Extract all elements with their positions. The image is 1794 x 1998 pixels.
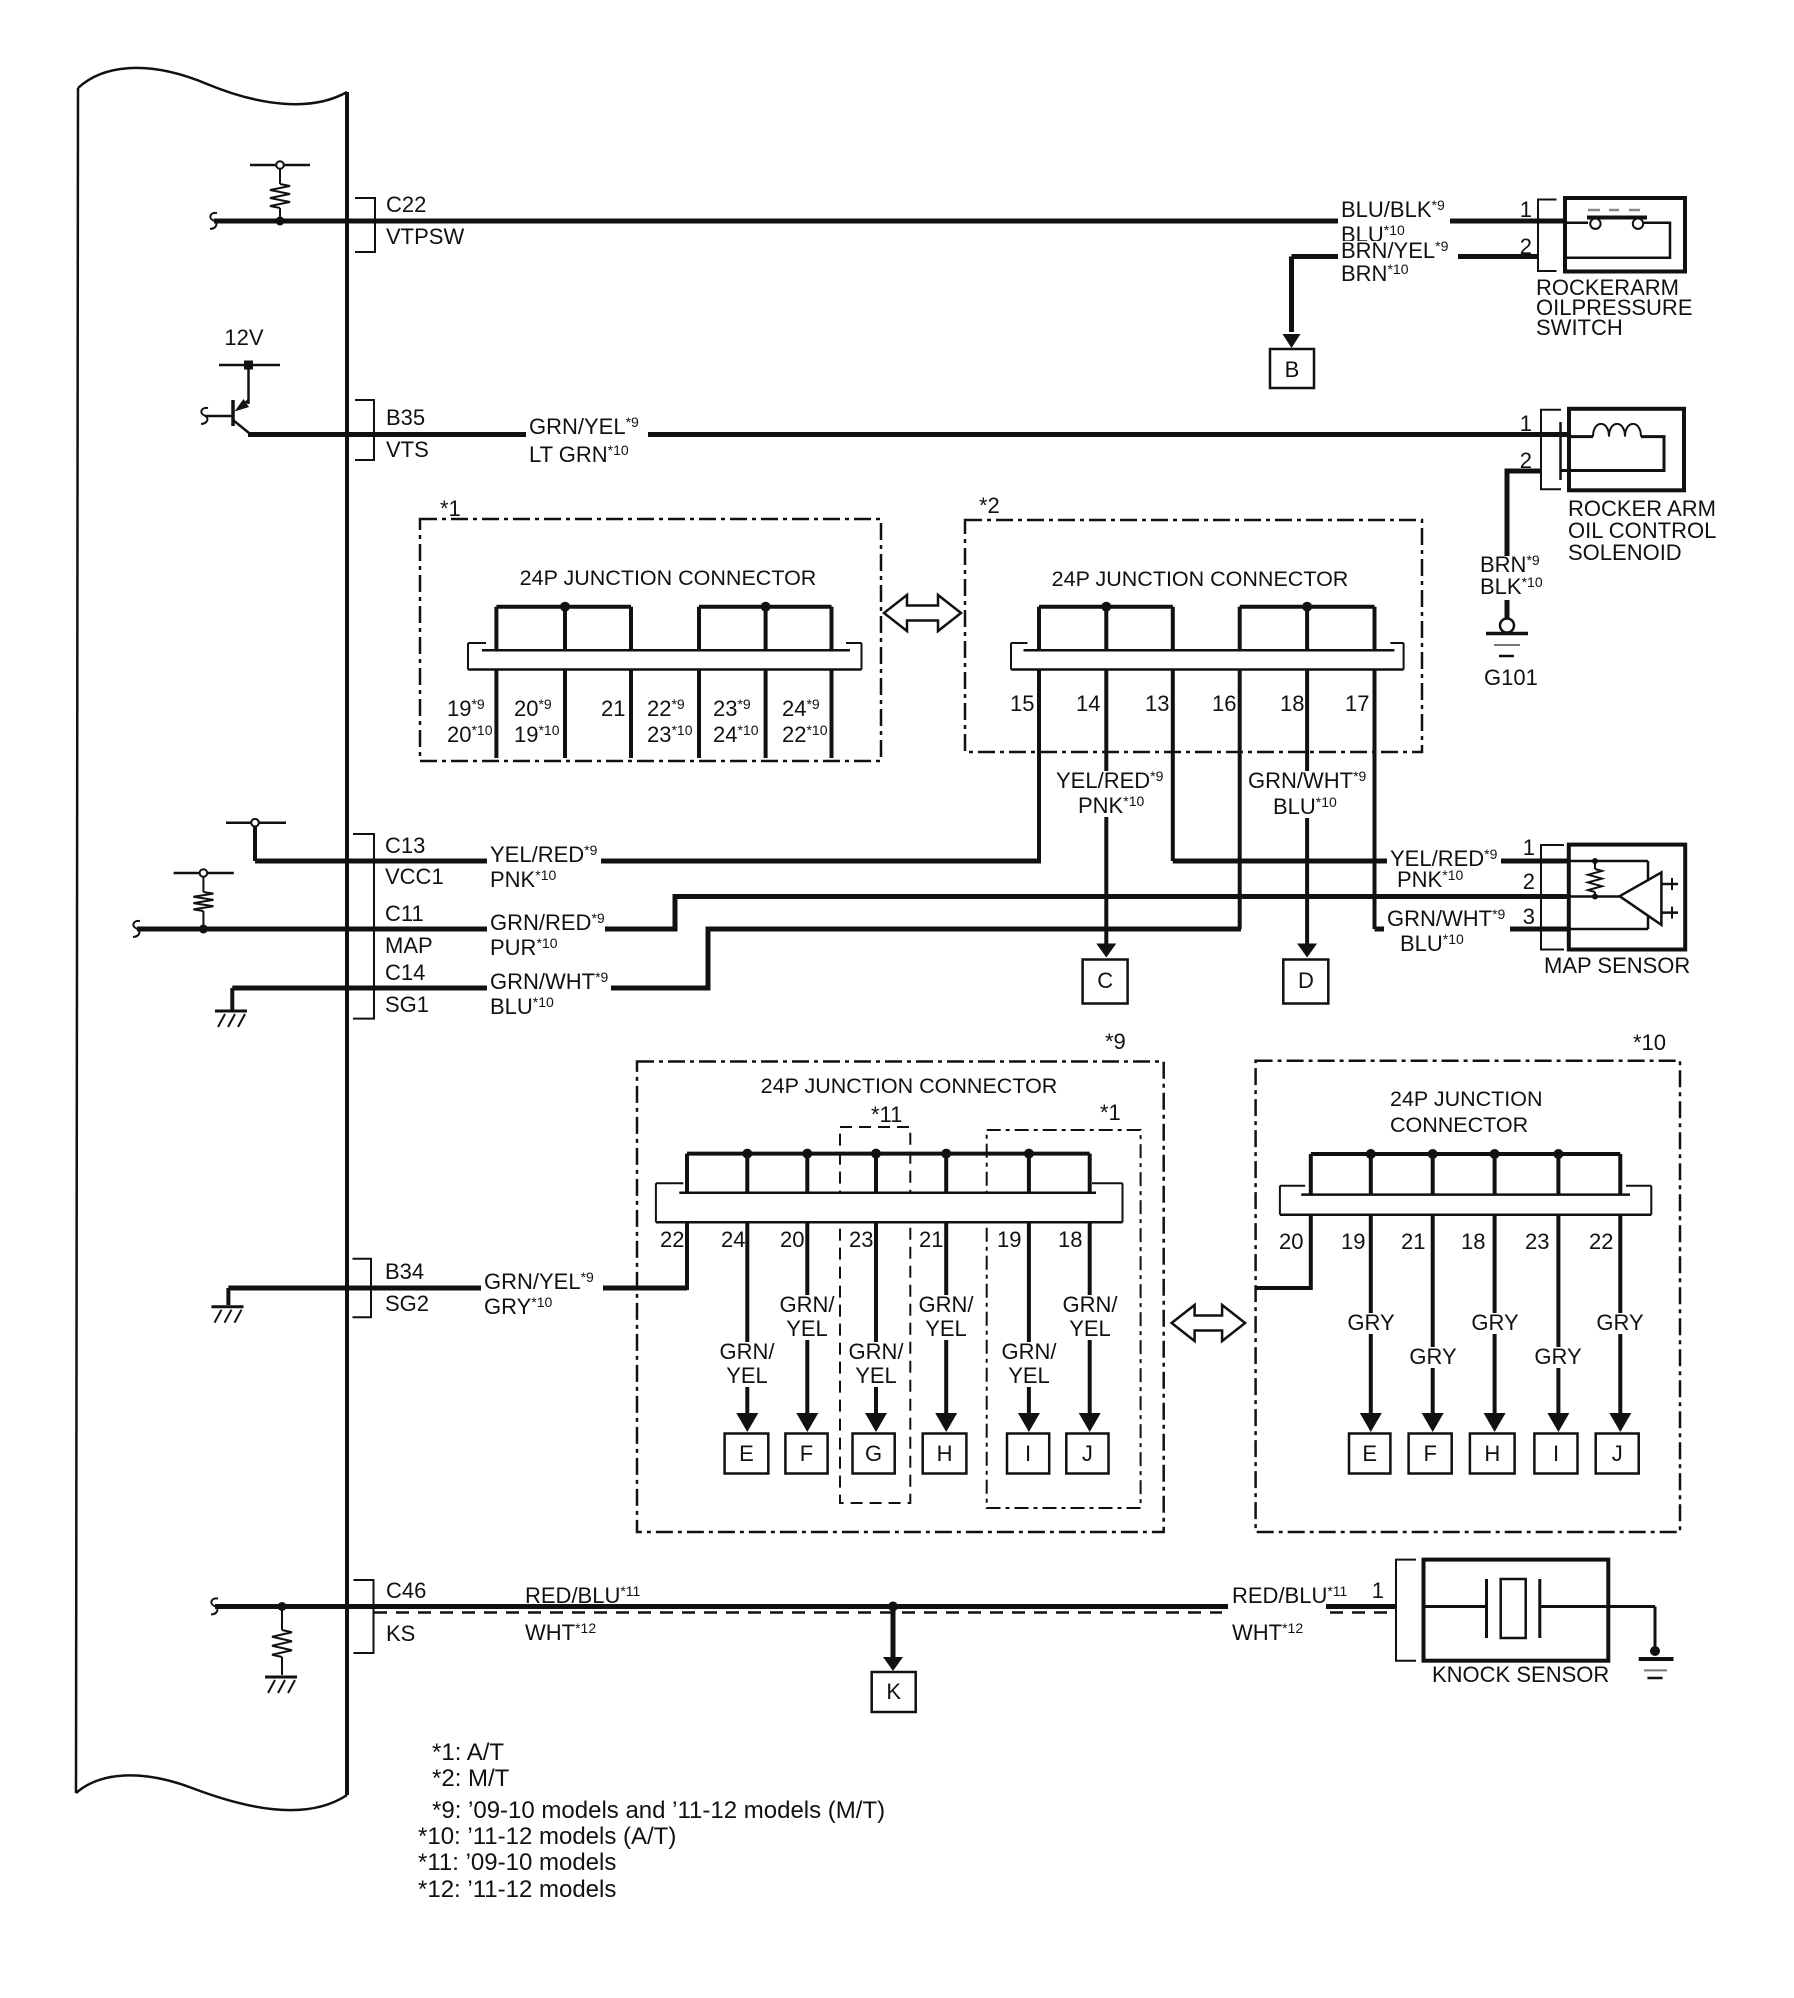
- svg-text:MAP SENSOR: MAP SENSOR: [1544, 953, 1690, 978]
- svg-text:KS: KS: [386, 1621, 415, 1646]
- svg-text:17: 17: [1345, 691, 1369, 716]
- svg-text:G: G: [865, 1441, 882, 1466]
- svg-text:K: K: [886, 1679, 901, 1704]
- svg-text:16: 16: [1212, 691, 1236, 716]
- svg-text:*2: *2: [979, 493, 1000, 518]
- svg-text:24P JUNCTION CONNECTOR: 24P JUNCTION CONNECTOR: [1052, 567, 1349, 591]
- svg-text:F: F: [1423, 1441, 1436, 1466]
- svg-text:YEL: YEL: [925, 1316, 967, 1341]
- svg-text:*9: ’09-10 models and ’11-12 m: *9: ’09-10 models and ’11-12 models (M/T…: [432, 1797, 885, 1824]
- svg-text:14: 14: [1076, 691, 1100, 716]
- svg-text:C14: C14: [385, 960, 425, 985]
- svg-text:VTS: VTS: [386, 437, 429, 462]
- svg-text:24P JUNCTION CONNECTOR: 24P JUNCTION CONNECTOR: [761, 1074, 1058, 1098]
- svg-text:BLU/BLK*9: BLU/BLK*9: [1341, 197, 1445, 222]
- svg-text:15: 15: [1010, 691, 1034, 716]
- svg-text:C22: C22: [386, 192, 426, 217]
- svg-text:19: 19: [997, 1227, 1021, 1252]
- svg-text:J: J: [1082, 1441, 1093, 1466]
- svg-text:GRY: GRY: [1596, 1310, 1644, 1335]
- svg-text:21: 21: [919, 1227, 943, 1252]
- svg-text:YEL: YEL: [786, 1316, 828, 1341]
- svg-text:24P JUNCTION: 24P JUNCTION: [1390, 1087, 1543, 1111]
- svg-text:24P JUNCTION CONNECTOR: 24P JUNCTION CONNECTOR: [520, 566, 817, 590]
- svg-text:GRN/: GRN/: [780, 1292, 836, 1317]
- svg-text:1: 1: [1520, 411, 1532, 436]
- svg-text:*11: *11: [871, 1102, 902, 1127]
- svg-text:GRN/: GRN/: [849, 1339, 905, 1364]
- svg-text:YEL/RED*9: YEL/RED*9: [490, 842, 598, 867]
- svg-text:GRN/: GRN/: [720, 1339, 776, 1364]
- svg-text:*12: ’11-12 models: *12: ’11-12 models: [418, 1876, 616, 1903]
- svg-text:GRN/YEL*9: GRN/YEL*9: [484, 1269, 594, 1294]
- svg-text:*9: *9: [1105, 1029, 1126, 1054]
- svg-text:22: 22: [1589, 1229, 1613, 1254]
- svg-text:E: E: [739, 1441, 754, 1466]
- svg-text:D: D: [1298, 968, 1314, 993]
- svg-text:20: 20: [780, 1227, 804, 1252]
- svg-text:*11: ’09-10 models: *11: ’09-10 models: [418, 1849, 616, 1876]
- svg-text:2: 2: [1520, 234, 1532, 259]
- svg-text:C13: C13: [385, 833, 425, 858]
- svg-text:MAP: MAP: [385, 933, 433, 958]
- svg-text:21: 21: [601, 696, 625, 721]
- svg-text:CONNECTOR: CONNECTOR: [1390, 1113, 1528, 1137]
- svg-text:C: C: [1097, 968, 1113, 993]
- svg-text:YEL: YEL: [1008, 1363, 1050, 1388]
- svg-text:GRN/: GRN/: [1063, 1292, 1119, 1317]
- svg-text:GRN/: GRN/: [919, 1292, 975, 1317]
- svg-text:H: H: [1484, 1441, 1500, 1466]
- svg-text:GRY: GRY: [1409, 1344, 1457, 1369]
- svg-text:*10: ’11-12 models (A/T): *10: ’11-12 models (A/T): [418, 1823, 676, 1850]
- svg-text:23: 23: [849, 1227, 873, 1252]
- svg-text:20: 20: [1279, 1229, 1303, 1254]
- svg-text:GRY: GRY: [1471, 1310, 1519, 1335]
- svg-text:22: 22: [660, 1227, 684, 1252]
- svg-text:KNOCK SENSOR: KNOCK SENSOR: [1432, 1662, 1609, 1687]
- svg-text:3: 3: [1523, 904, 1535, 929]
- svg-text:SG2: SG2: [385, 1291, 429, 1316]
- svg-text:*2: M/T: *2: M/T: [432, 1765, 510, 1792]
- svg-text:I: I: [1025, 1441, 1031, 1466]
- svg-text:YEL/RED*9: YEL/RED*9: [1056, 768, 1164, 793]
- svg-text:H: H: [937, 1441, 953, 1466]
- svg-text:E: E: [1362, 1441, 1377, 1466]
- svg-text:GRN/WHT*9: GRN/WHT*9: [490, 969, 609, 994]
- svg-text:GRY: GRY: [1534, 1344, 1582, 1369]
- svg-text:18: 18: [1280, 691, 1304, 716]
- svg-text:VCC1: VCC1: [385, 864, 444, 889]
- svg-text:VTPSW: VTPSW: [386, 224, 464, 249]
- svg-text:SG1: SG1: [385, 992, 429, 1017]
- svg-text:YEL: YEL: [855, 1363, 897, 1388]
- svg-text:18: 18: [1058, 1227, 1082, 1252]
- svg-text:*1: A/T: *1: A/T: [432, 1739, 504, 1766]
- svg-text:SWITCH: SWITCH: [1536, 315, 1623, 340]
- svg-text:*1: *1: [1100, 1100, 1121, 1125]
- svg-text:1: 1: [1372, 1578, 1384, 1603]
- svg-text:12V: 12V: [224, 325, 263, 350]
- svg-text:24: 24: [721, 1227, 745, 1252]
- svg-text:2: 2: [1523, 869, 1535, 894]
- svg-text:B34: B34: [385, 1259, 424, 1284]
- svg-text:GRN/RED*9: GRN/RED*9: [490, 910, 605, 935]
- svg-text:YEL: YEL: [1069, 1316, 1111, 1341]
- svg-text:13: 13: [1145, 691, 1169, 716]
- svg-text:G101: G101: [1484, 665, 1538, 690]
- svg-text:C46: C46: [386, 1578, 426, 1603]
- svg-text:GRN/YEL*9: GRN/YEL*9: [529, 414, 639, 439]
- svg-text:1: 1: [1523, 835, 1535, 860]
- svg-text:19: 19: [1341, 1229, 1365, 1254]
- svg-text:1: 1: [1520, 197, 1532, 222]
- svg-text:BRN/YEL*9: BRN/YEL*9: [1341, 238, 1449, 263]
- svg-text:GRN/: GRN/: [1002, 1339, 1058, 1364]
- svg-text:*1: *1: [440, 496, 461, 521]
- svg-text:B35: B35: [386, 405, 425, 430]
- svg-text:C11: C11: [385, 901, 424, 926]
- svg-text:*10: *10: [1633, 1030, 1666, 1055]
- svg-text:J: J: [1612, 1441, 1623, 1466]
- svg-text:21: 21: [1401, 1229, 1425, 1254]
- svg-text:GRN/WHT*9: GRN/WHT*9: [1248, 768, 1367, 793]
- svg-text:B: B: [1285, 357, 1300, 382]
- svg-text:GRN/WHT*9: GRN/WHT*9: [1387, 906, 1506, 931]
- svg-text:I: I: [1553, 1441, 1559, 1466]
- svg-text:18: 18: [1461, 1229, 1485, 1254]
- svg-text:YEL: YEL: [726, 1363, 768, 1388]
- svg-text:F: F: [800, 1441, 813, 1466]
- svg-text:GRY: GRY: [1347, 1310, 1395, 1335]
- svg-text:23: 23: [1525, 1229, 1549, 1254]
- svg-text:SOLENOID: SOLENOID: [1568, 540, 1682, 565]
